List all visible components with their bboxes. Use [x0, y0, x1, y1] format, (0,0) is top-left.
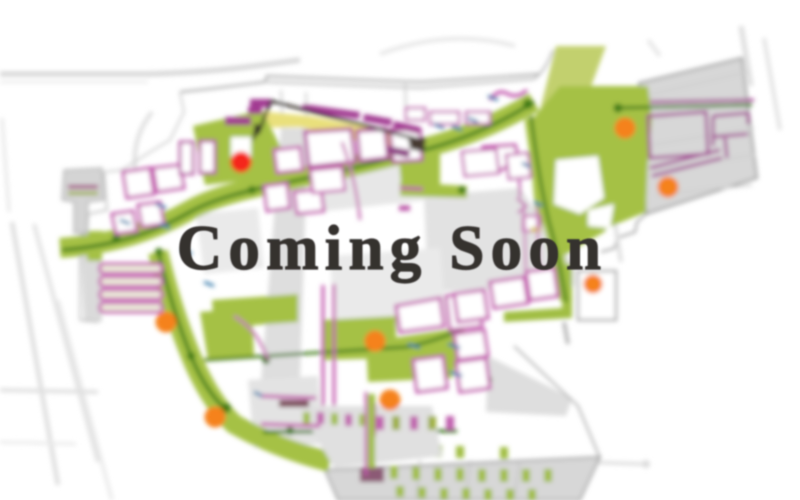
svg-text:Coming Soon: Coming Soon: [177, 213, 608, 283]
